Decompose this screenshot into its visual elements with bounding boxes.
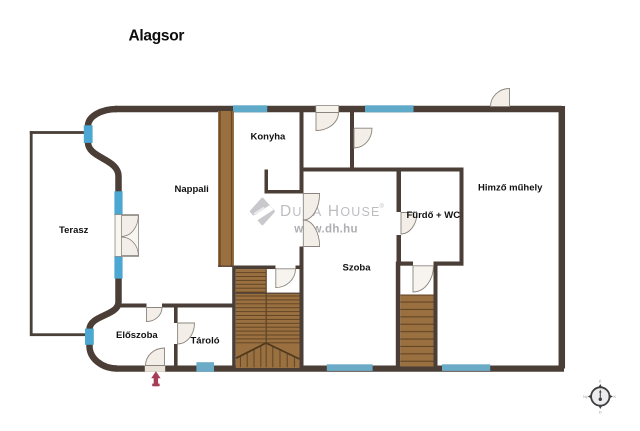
svg-text:Himző műhely: Himző műhely [478, 183, 543, 194]
svg-text:Terasz: Terasz [59, 225, 89, 236]
svg-text:Nappali: Nappali [175, 184, 209, 195]
svg-text:Előszoba: Előszoba [116, 330, 158, 341]
svg-text:K: K [614, 395, 617, 399]
svg-text:Szoba: Szoba [343, 263, 372, 274]
svg-text:DUNA HOUSE: DUNA HOUSE [280, 203, 381, 220]
svg-text:É: É [599, 379, 602, 384]
svg-text:Fürdő + WC: Fürdő + WC [407, 210, 461, 221]
svg-text:Ny: Ny [583, 395, 588, 399]
svg-text:Alagsor: Alagsor [129, 28, 185, 45]
svg-text:Tároló: Tároló [191, 336, 220, 347]
svg-text:D: D [599, 411, 602, 415]
svg-text:Konyha: Konyha [251, 132, 287, 143]
svg-text:®: ® [380, 203, 385, 210]
